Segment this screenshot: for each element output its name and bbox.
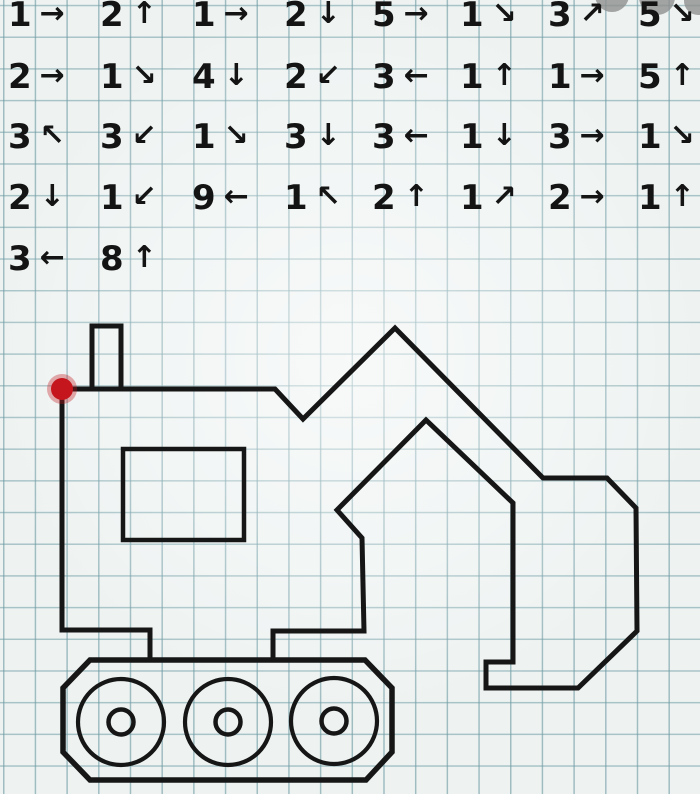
arrow-right-icon: → [404, 0, 429, 32]
instruction-item: 9← [192, 180, 249, 216]
instruction-item: 1↗ [460, 180, 517, 216]
instruction-item: 3↙ [100, 119, 157, 155]
wheel-hub [109, 710, 134, 735]
instruction-item: 8↑ [100, 241, 157, 277]
instruction-number: 1 [192, 119, 215, 155]
instruction-item: 1↙ [100, 180, 157, 216]
instruction-number: 3 [8, 241, 31, 277]
arrow-down-icon: ↓ [316, 0, 341, 32]
instruction-item: 2↙ [284, 59, 341, 95]
instruction-item: 3← [372, 59, 429, 95]
instruction-item: 1↓ [460, 119, 517, 155]
instruction-number: 2 [284, 59, 307, 95]
arrow-up-icon: ↑ [132, 240, 157, 276]
start-dot-core [51, 378, 73, 400]
instruction-item: 1↘ [100, 59, 157, 95]
wheel-hub [216, 710, 241, 735]
instruction-item: 4↓ [192, 59, 249, 95]
arrow-up-left-icon: ↖ [316, 179, 341, 215]
instruction-item: 2↑ [372, 180, 429, 216]
instruction-number: 2 [372, 180, 395, 216]
arrow-down-icon: ↓ [40, 179, 65, 215]
instruction-number: 3 [100, 119, 123, 155]
instruction-number: 2 [8, 180, 31, 216]
arrow-up-icon: ↑ [492, 58, 517, 94]
instruction-row: 2↓1↙9←1↖2↑1↗2→1↑ [0, 180, 700, 216]
wheel-hub [322, 709, 347, 734]
instruction-item: 1→ [548, 59, 605, 95]
instruction-number: 2 [8, 59, 31, 95]
instruction-item: 5→ [372, 0, 429, 33]
instruction-number: 2 [100, 0, 123, 33]
cab-window [123, 449, 244, 540]
instruction-number: 3 [8, 119, 31, 155]
instruction-row: 2→1↘4↓2↙3←1↑1→5↑ [0, 59, 700, 95]
instruction-item: 2→ [8, 59, 65, 95]
arrow-down-right-icon: ↘ [670, 0, 695, 32]
instruction-number: 5 [638, 0, 661, 33]
instruction-number: 3 [284, 119, 307, 155]
instruction-number: 1 [460, 119, 483, 155]
instruction-item: 1→ [8, 0, 65, 33]
worksheet-page: 1→2↑1→2↓5→1↘3↗5↘2→1↘4↓2↙3←1↑1→5↑3↖3↙1↘3↓… [0, 0, 700, 794]
arrow-down-icon: ↓ [316, 118, 341, 154]
instruction-item: 1↖ [284, 180, 341, 216]
arrow-right-icon: → [580, 58, 605, 94]
instruction-number: 3 [548, 119, 571, 155]
instruction-item: 3← [372, 119, 429, 155]
arrow-down-left-icon: ↙ [132, 179, 157, 215]
arrow-left-icon: ← [224, 179, 249, 215]
instruction-item: 1↘ [638, 119, 695, 155]
instruction-number: 1 [100, 59, 123, 95]
wheel [78, 679, 164, 765]
instruction-number: 1 [100, 180, 123, 216]
instruction-number: 1 [192, 0, 215, 33]
arrow-down-right-icon: ↘ [670, 118, 695, 154]
arrow-right-icon: → [40, 58, 65, 94]
instruction-item: 2↑ [100, 0, 157, 33]
instruction-number: 1 [548, 59, 571, 95]
arrow-down-left-icon: ↙ [132, 118, 157, 154]
instruction-number: 1 [460, 180, 483, 216]
arrow-right-icon: → [224, 0, 249, 32]
instruction-row: 3↖3↙1↘3↓3←1↓3→1↘ [0, 119, 700, 155]
instruction-number: 3 [372, 119, 395, 155]
arrow-up-right-icon: ↗ [580, 0, 605, 32]
excavator-body-outline [62, 328, 637, 688]
instruction-number: 3 [372, 59, 395, 95]
instruction-item: 1↘ [192, 119, 249, 155]
exhaust-pipe [92, 326, 121, 389]
instruction-number: 3 [548, 0, 571, 33]
arrow-right-icon: → [580, 179, 605, 215]
instruction-number: 1 [460, 59, 483, 95]
instruction-item: 2→ [548, 180, 605, 216]
instruction-number: 1 [460, 0, 483, 33]
arrow-left-icon: ← [40, 240, 65, 276]
instruction-number: 2 [548, 180, 571, 216]
arrow-up-icon: ↑ [670, 179, 695, 215]
instruction-number: 5 [638, 59, 661, 95]
arrow-down-left-icon: ↙ [316, 58, 341, 94]
instruction-item: 2↓ [8, 180, 65, 216]
arrow-up-left-icon: ↖ [40, 118, 65, 154]
wheel [185, 679, 271, 765]
instruction-item: 5↘ [638, 0, 695, 33]
instruction-item: 3↖ [8, 119, 65, 155]
instruction-item: 5↑ [638, 59, 695, 95]
instruction-item: 2↓ [284, 0, 341, 33]
arrow-left-icon: ← [404, 118, 429, 154]
arrow-down-right-icon: ↘ [132, 58, 157, 94]
arrow-right-icon: → [580, 118, 605, 154]
arrow-up-icon: ↑ [670, 58, 695, 94]
instruction-item: 1↑ [460, 59, 517, 95]
instruction-row: 1→2↑1→2↓5→1↘3↗5↘ [0, 0, 700, 33]
instruction-number: 5 [372, 0, 395, 33]
instruction-number: 1 [284, 180, 307, 216]
instruction-number: 1 [638, 180, 661, 216]
arrow-up-icon: ↑ [404, 179, 429, 215]
instruction-item: 3← [8, 241, 65, 277]
instruction-item: 1→ [192, 0, 249, 33]
arrow-down-right-icon: ↘ [492, 0, 517, 32]
instruction-item: 3↓ [284, 119, 341, 155]
arrow-down-icon: ↓ [492, 118, 517, 154]
instruction-row: 3←8↑ [0, 241, 700, 277]
instruction-number: 1 [638, 119, 661, 155]
instruction-item: 1↑ [638, 180, 695, 216]
instruction-item: 3↗ [548, 0, 605, 33]
instruction-number: 4 [192, 59, 215, 95]
start-dot [47, 374, 77, 404]
arrow-up-right-icon: ↗ [492, 179, 517, 215]
instruction-number: 2 [284, 0, 307, 33]
arrow-left-icon: ← [404, 58, 429, 94]
wheel [291, 678, 377, 764]
instruction-item: 1↘ [460, 0, 517, 33]
instruction-number: 8 [100, 241, 123, 277]
arrow-up-icon: ↑ [132, 0, 157, 32]
arrow-down-right-icon: ↘ [224, 118, 249, 154]
instruction-number: 9 [192, 180, 215, 216]
instruction-item: 3→ [548, 119, 605, 155]
arrow-down-icon: ↓ [224, 58, 249, 94]
arrow-right-icon: → [40, 0, 65, 32]
instruction-number: 1 [8, 0, 31, 33]
wheels-group [78, 678, 377, 765]
